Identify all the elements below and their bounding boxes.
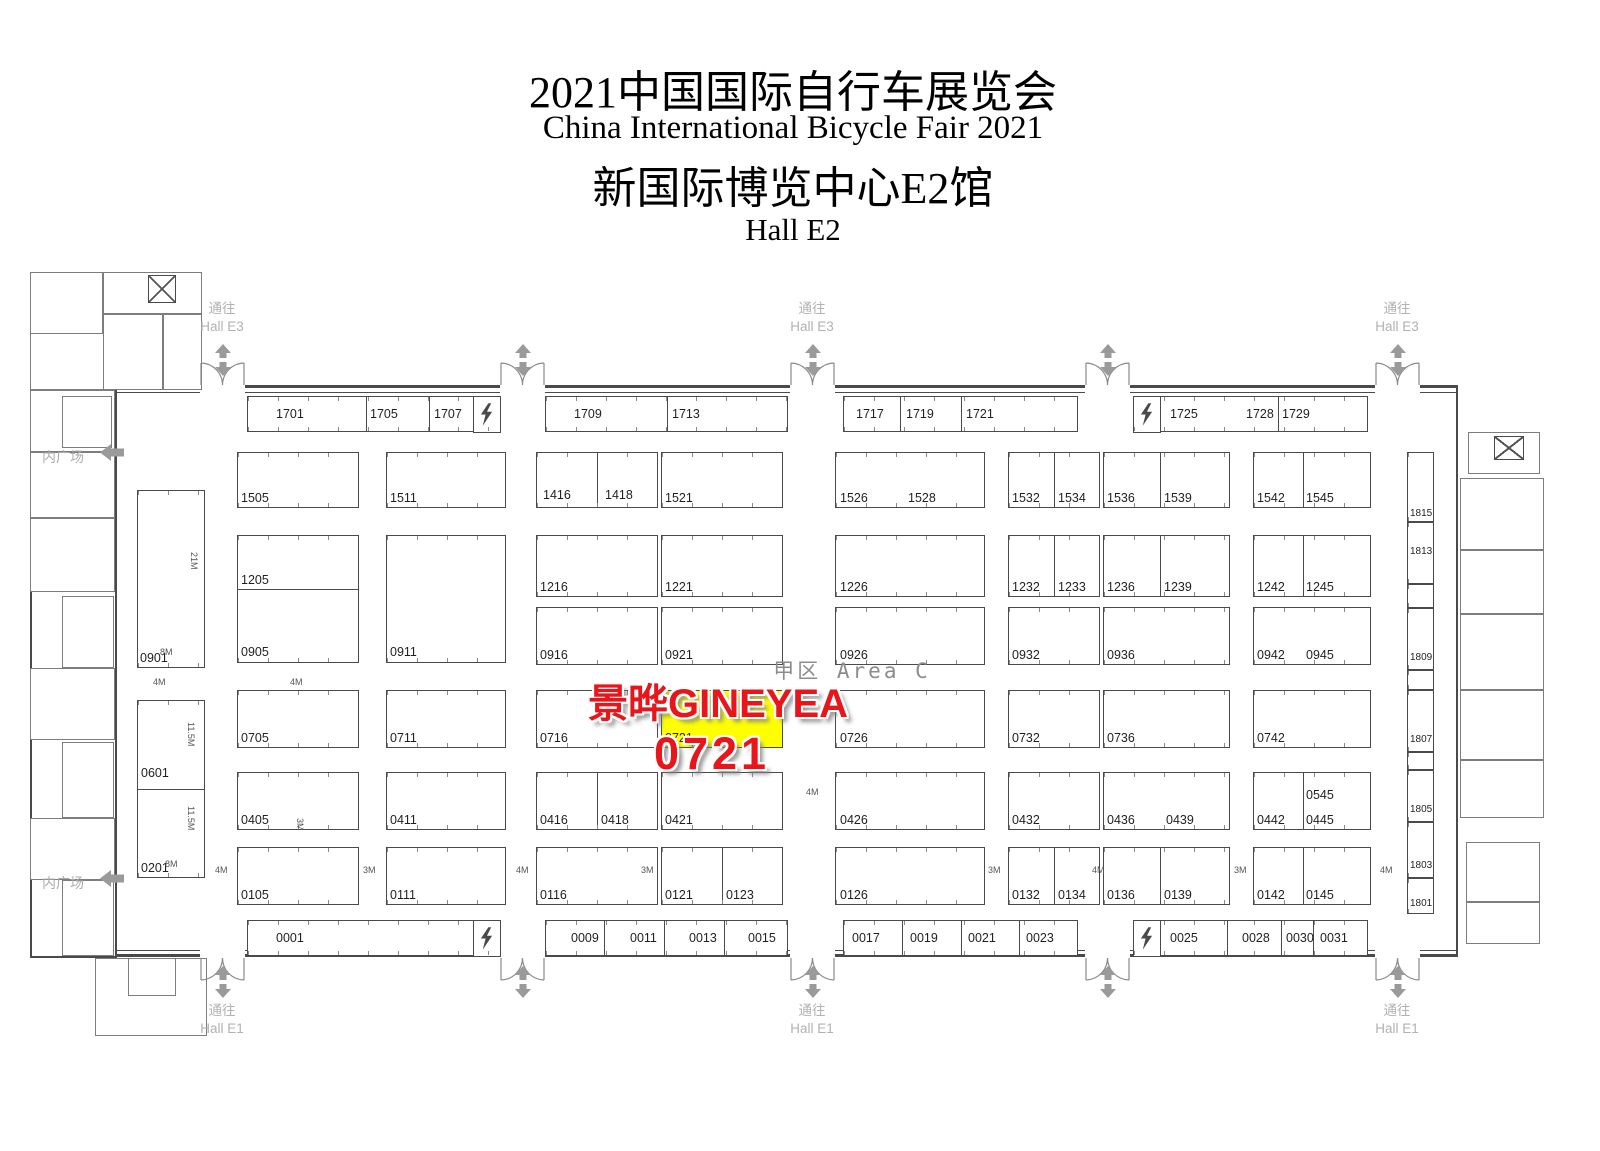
booth-number: 0111	[390, 889, 416, 902]
booth-number: 0421	[665, 814, 693, 827]
booth-number: 1719	[906, 408, 934, 421]
booth-1532: 15321534	[1008, 452, 1100, 508]
room-outline	[163, 314, 202, 390]
booth-unlabeled	[1407, 584, 1434, 608]
room-outline	[128, 958, 176, 996]
dimension-label: 3M	[295, 818, 304, 831]
dimension-label: 3M	[363, 866, 376, 875]
booth-0142: 01420145	[1253, 847, 1371, 905]
power-icon	[473, 920, 501, 957]
booth-number: 0405	[241, 814, 269, 827]
booth-number: 0015	[748, 932, 776, 945]
booth-divider	[900, 397, 901, 431]
passage-arrow-icon	[514, 966, 532, 998]
booth-number: 0136	[1107, 889, 1135, 902]
passage-arrow-icon	[214, 344, 232, 376]
booth-divider	[1281, 921, 1282, 955]
booth-1242: 12421245	[1253, 535, 1371, 597]
booth-number: 1707	[434, 408, 462, 421]
booth-number: 0432	[1012, 814, 1040, 827]
booth-0916: 0916	[536, 607, 658, 665]
room-outline	[1466, 842, 1540, 902]
booth-1803: 1803	[1407, 822, 1434, 878]
booth-number: 0439	[1166, 814, 1194, 827]
booth-number: 0023	[1026, 932, 1054, 945]
wall-segment	[1420, 954, 1458, 957]
booth-0105: 0105	[237, 847, 359, 905]
booth-number: 0936	[1107, 649, 1135, 662]
booth-number: 1709	[574, 408, 602, 421]
booth-0416: 04160418	[536, 772, 658, 830]
booth-number: 0011	[630, 932, 657, 945]
booth-0017: 0017001900210023	[843, 920, 1078, 956]
booth-number: 1232	[1012, 581, 1040, 594]
passage-arrow-icon	[1099, 966, 1117, 998]
booth-divider	[1227, 921, 1228, 955]
room-outline	[1460, 690, 1544, 760]
booth-number: 0705	[241, 732, 269, 745]
booth-0711: 0711	[386, 690, 506, 748]
booth-0736: 0736	[1103, 690, 1230, 748]
booth-number: 0134	[1058, 889, 1086, 902]
booth-1709: 17091713	[545, 396, 788, 432]
dimension-label: 3M	[641, 866, 654, 875]
gate-label-hall-e3: 通往Hall E3	[1375, 300, 1419, 336]
booth-number: 1805	[1410, 805, 1432, 815]
booth-0436: 04360439	[1103, 772, 1230, 830]
booth-0025: 0025002800300031	[1133, 920, 1368, 956]
passage-arrow-icon	[514, 344, 532, 376]
room-outline	[1460, 550, 1544, 614]
booth-number: 1815	[1410, 509, 1432, 519]
wall-segment	[1130, 385, 1375, 388]
booth-number: 1221	[665, 581, 693, 594]
room-outline	[30, 518, 115, 592]
booth-0001: 0001	[247, 920, 500, 956]
booth-number: 1242	[1257, 581, 1285, 594]
booth-number: 0921	[665, 649, 693, 662]
booth-number: 0126	[840, 889, 868, 902]
booth-1542: 15421545	[1253, 452, 1371, 508]
booth-number: 0426	[840, 814, 868, 827]
booth-number: 0001	[276, 932, 304, 945]
booth-divider	[961, 397, 962, 431]
booth-0732: 0732	[1008, 690, 1100, 748]
booth-number: 0711	[390, 732, 417, 745]
booth-number: 0025	[1170, 932, 1198, 945]
booth-1526: 15261528	[835, 452, 985, 508]
booth-number: 1521	[665, 492, 693, 505]
booth-number: 0028	[1242, 932, 1270, 945]
booth-0121: 01210123	[661, 847, 783, 905]
booth-1505: 1505	[237, 452, 359, 508]
booth-number: 0105	[241, 889, 269, 902]
dimension-label: 4M	[290, 678, 303, 687]
booth-0742: 0742	[1253, 690, 1371, 748]
booth-number: 1205	[241, 574, 269, 587]
room-outline	[1460, 760, 1544, 818]
booth-number: 0436	[1107, 814, 1135, 827]
booth-1521: 1521	[661, 452, 783, 508]
dimension-label: 3M	[1234, 866, 1247, 875]
booth-number: 1216	[540, 581, 568, 594]
wall-segment	[545, 385, 790, 388]
booth-number: 0442	[1257, 814, 1285, 827]
booth-1809: 1809	[1407, 608, 1434, 670]
booth-number: 0716	[540, 732, 568, 745]
dimension-label: 3M	[988, 866, 1001, 875]
booth-number: 1226	[840, 581, 868, 594]
booth-1536: 15361539	[1103, 452, 1230, 508]
booth-1701: 170117051707	[247, 396, 500, 432]
booth-divider	[667, 397, 668, 431]
booth-number: 1542	[1257, 492, 1285, 505]
highlight-exhibitor-name: 景晔GINEYEA	[588, 684, 848, 724]
booth-divider	[961, 921, 962, 955]
booth-number: 0013	[689, 932, 717, 945]
booth-number: 0139	[1164, 889, 1192, 902]
room-outline	[103, 314, 163, 390]
booth-divider	[1278, 397, 1279, 431]
booth-divider	[366, 397, 367, 431]
shaft-x-box	[1494, 436, 1524, 460]
booth-unlabeled	[1407, 670, 1434, 690]
booth-0911: 0911	[386, 535, 506, 663]
booth-0705: 0705	[237, 690, 359, 748]
booth-1813: 1813	[1407, 522, 1434, 584]
booth-0116: 0116	[536, 847, 658, 905]
power-icon	[473, 396, 501, 433]
booth-divider	[722, 848, 723, 904]
booth-number: 0445	[1306, 814, 1334, 827]
booth-number: 0601	[141, 767, 169, 780]
booth-number: 0017	[852, 932, 880, 945]
dimension-label: 4M	[516, 866, 529, 875]
booth-number: 0545	[1306, 789, 1334, 802]
booth-number: 1729	[1282, 408, 1310, 421]
dimension-label: 4M	[1092, 866, 1105, 875]
booth-0932: 0932	[1008, 607, 1100, 665]
passage-arrow-icon	[1099, 344, 1117, 376]
booth-number: 0021	[968, 932, 996, 945]
power-icon	[1133, 920, 1161, 957]
booth-number: 1511	[390, 492, 417, 505]
booth-number: 0121	[665, 889, 693, 902]
booth-number: 1245	[1306, 581, 1334, 594]
booth-divider	[238, 589, 358, 590]
booth-number: 1534	[1058, 492, 1086, 505]
booth-number: 0416	[540, 814, 568, 827]
passage-arrow-icon	[1389, 966, 1407, 998]
booth-0921: 0921	[661, 607, 783, 665]
wall-segment	[245, 392, 500, 393]
booth-0901: 0901	[137, 490, 205, 668]
floorplan-page: 2021中国国际自行车展览会 China International Bicyc…	[0, 0, 1600, 1151]
booth-1205: 12050905	[237, 535, 359, 663]
floorplan: 甲区 Area C 景晔GINEYEA 0721 170117051707170…	[0, 0, 1600, 1151]
booth-number: 0031	[1320, 932, 1348, 945]
booth-divider	[1054, 453, 1055, 507]
booth-number: 1528	[908, 492, 936, 505]
booth-number: 0019	[910, 932, 938, 945]
gate-label-hall-e1: 通往Hall E1	[790, 1002, 834, 1038]
gate-label-hall-e3: 通往Hall E3	[200, 300, 244, 336]
booth-0111: 0111	[386, 847, 506, 905]
booth-divider	[1303, 773, 1304, 829]
booth-unlabeled	[1407, 752, 1434, 770]
booth-number: 1809	[1410, 653, 1432, 663]
booth-divider	[1303, 536, 1304, 596]
room-outline	[62, 742, 114, 818]
booth-number: 1713	[672, 408, 700, 421]
wall-segment	[1420, 392, 1458, 393]
passage-arrow-icon	[214, 966, 232, 998]
booth-number: 1701	[276, 408, 304, 421]
booth-1511: 1511	[386, 452, 506, 508]
booth-number: 1725	[1170, 408, 1198, 421]
booth-divider	[597, 453, 598, 507]
booth-1717: 171717191721	[843, 396, 1078, 432]
wall-segment	[835, 385, 1085, 388]
booth-divider	[597, 773, 598, 829]
passage-arrow-icon	[1389, 344, 1407, 376]
wall-segment	[245, 385, 500, 388]
booth-0421: 0421	[661, 772, 783, 830]
plaza-arrow-icon	[100, 870, 124, 887]
booth-number: 1813	[1410, 547, 1432, 557]
room-outline	[1460, 478, 1544, 550]
wall-segment	[1456, 385, 1458, 957]
room-outline	[62, 396, 112, 448]
dimension-label: 8M	[160, 648, 173, 657]
booth-number: 0732	[1012, 732, 1040, 745]
booth-number: 0009	[571, 932, 599, 945]
booth-number: 1728	[1246, 408, 1274, 421]
dimension-label: 8M	[165, 860, 178, 869]
booth-1416: 14161418	[536, 452, 658, 508]
booth-divider	[1160, 536, 1161, 596]
booth-number: 1505	[241, 492, 269, 505]
booth-number: 0418	[601, 814, 629, 827]
booth-1805: 1805	[1407, 770, 1434, 822]
booth-0009: 0009001100130015	[545, 920, 788, 956]
booth-number: 0905	[241, 646, 269, 659]
room-outline	[1466, 902, 1540, 944]
booth-number: 1717	[856, 408, 884, 421]
booth-1725: 172517281729	[1133, 396, 1368, 432]
booth-divider	[1054, 848, 1055, 904]
booth-divider	[604, 921, 605, 955]
booth-0442: 044205450445	[1253, 772, 1371, 830]
gate-label-hall-e3: 通往Hall E3	[790, 300, 834, 336]
booth-divider	[1160, 848, 1161, 904]
booth-0936: 0936	[1103, 607, 1230, 665]
booth-number: 1803	[1410, 861, 1432, 871]
booth-number: 1416	[543, 489, 571, 502]
dimension-label: 4M	[1380, 866, 1393, 875]
booth-1216: 1216	[536, 535, 658, 597]
booth-number: 1536	[1107, 492, 1135, 505]
booth-divider	[1303, 848, 1304, 904]
wall-segment	[115, 950, 200, 951]
booth-divider	[429, 397, 430, 431]
wall-segment	[115, 954, 200, 957]
booth-number: 0132	[1012, 889, 1040, 902]
booth-number: 0942	[1257, 649, 1285, 662]
booth-divider	[1054, 536, 1055, 596]
room-outline	[30, 272, 103, 334]
booth-divider	[1303, 453, 1304, 507]
gate-label-hall-e1: 通往Hall E1	[1375, 1002, 1419, 1038]
booth-number: 1807	[1410, 735, 1432, 745]
dimension-label: 4M	[153, 678, 166, 687]
booth-number: 1721	[966, 408, 994, 421]
inner-plaza-label: 内广场	[42, 873, 84, 893]
booth-number: 0911	[390, 646, 417, 659]
booth-number: 1705	[370, 408, 398, 421]
booth-1236: 12361239	[1103, 535, 1230, 597]
booth-1807: 1807	[1407, 690, 1434, 752]
inner-plaza-label: 内广场	[42, 447, 84, 467]
booth-0726: 0726	[835, 690, 985, 748]
dimension-label: 4M	[806, 788, 819, 797]
passage-arrow-icon	[804, 966, 822, 998]
booth-divider	[1160, 453, 1161, 507]
passage-arrow-icon	[804, 344, 822, 376]
wall-segment	[115, 392, 200, 393]
booth-number: 0145	[1306, 889, 1334, 902]
booth-0136: 01360139	[1103, 847, 1230, 905]
booth-0126: 0126	[835, 847, 985, 905]
booth-divider	[1019, 921, 1020, 955]
shaft-x-box	[148, 275, 176, 303]
booth-divider	[724, 921, 725, 955]
booth-1815: 1815	[1407, 452, 1434, 522]
booth-number: 0142	[1257, 889, 1285, 902]
booth-number: 1532	[1012, 492, 1040, 505]
booth-1801: 1801	[1407, 878, 1434, 914]
booth-1221: 1221	[661, 535, 783, 597]
room-outline	[30, 668, 115, 740]
booth-number: 1526	[840, 492, 868, 505]
booth-divider	[664, 921, 665, 955]
booth-number: 0742	[1257, 732, 1285, 745]
booth-number: 0411	[390, 814, 417, 827]
booth-number: 0726	[840, 732, 868, 745]
booth-divider	[902, 921, 903, 955]
booth-number: 0030	[1286, 932, 1314, 945]
plaza-arrow-icon	[100, 444, 124, 461]
area-c-label: 甲区 Area C	[773, 655, 931, 685]
booth-0411: 0411	[386, 772, 506, 830]
room-outline	[62, 596, 114, 668]
booth-1226: 1226	[835, 535, 985, 597]
booth-number: 1233	[1058, 581, 1086, 594]
dimension-label: 11.5M	[186, 722, 195, 746]
booth-number: 1545	[1306, 492, 1334, 505]
booth-0132: 01320134	[1008, 847, 1100, 905]
booth-number: 1539	[1164, 492, 1192, 505]
wall-segment	[1420, 950, 1458, 951]
highlight-booth-number: 0721	[654, 731, 770, 776]
booth-0426: 0426	[835, 772, 985, 830]
booth-0942: 09420945	[1253, 607, 1371, 665]
dimension-label: 4M	[215, 866, 228, 875]
booth-number: 1801	[1410, 899, 1432, 909]
booth-divider	[138, 789, 204, 790]
wall-segment	[1130, 392, 1375, 393]
booth-1232: 12321233	[1008, 535, 1100, 597]
booth-number: 1236	[1107, 581, 1135, 594]
gate-label-hall-e1: 通往Hall E1	[200, 1002, 244, 1038]
booth-number: 0945	[1306, 649, 1334, 662]
dimension-label: 21M	[189, 552, 198, 570]
booth-number: 0123	[726, 889, 754, 902]
booth-number: 0916	[540, 649, 568, 662]
wall-segment	[1420, 385, 1458, 388]
power-icon	[1133, 396, 1161, 433]
wall-segment	[545, 392, 790, 393]
room-outline	[1460, 614, 1544, 690]
booth-number: 1239	[1164, 581, 1192, 594]
dimension-label: 11.5M	[186, 806, 195, 830]
booth-number: 0736	[1107, 732, 1135, 745]
booth-number: 0932	[1012, 649, 1040, 662]
booth-number: 1418	[605, 489, 633, 502]
booth-0432: 0432	[1008, 772, 1100, 830]
wall-segment	[835, 392, 1085, 393]
booth-number: 0116	[540, 889, 567, 902]
